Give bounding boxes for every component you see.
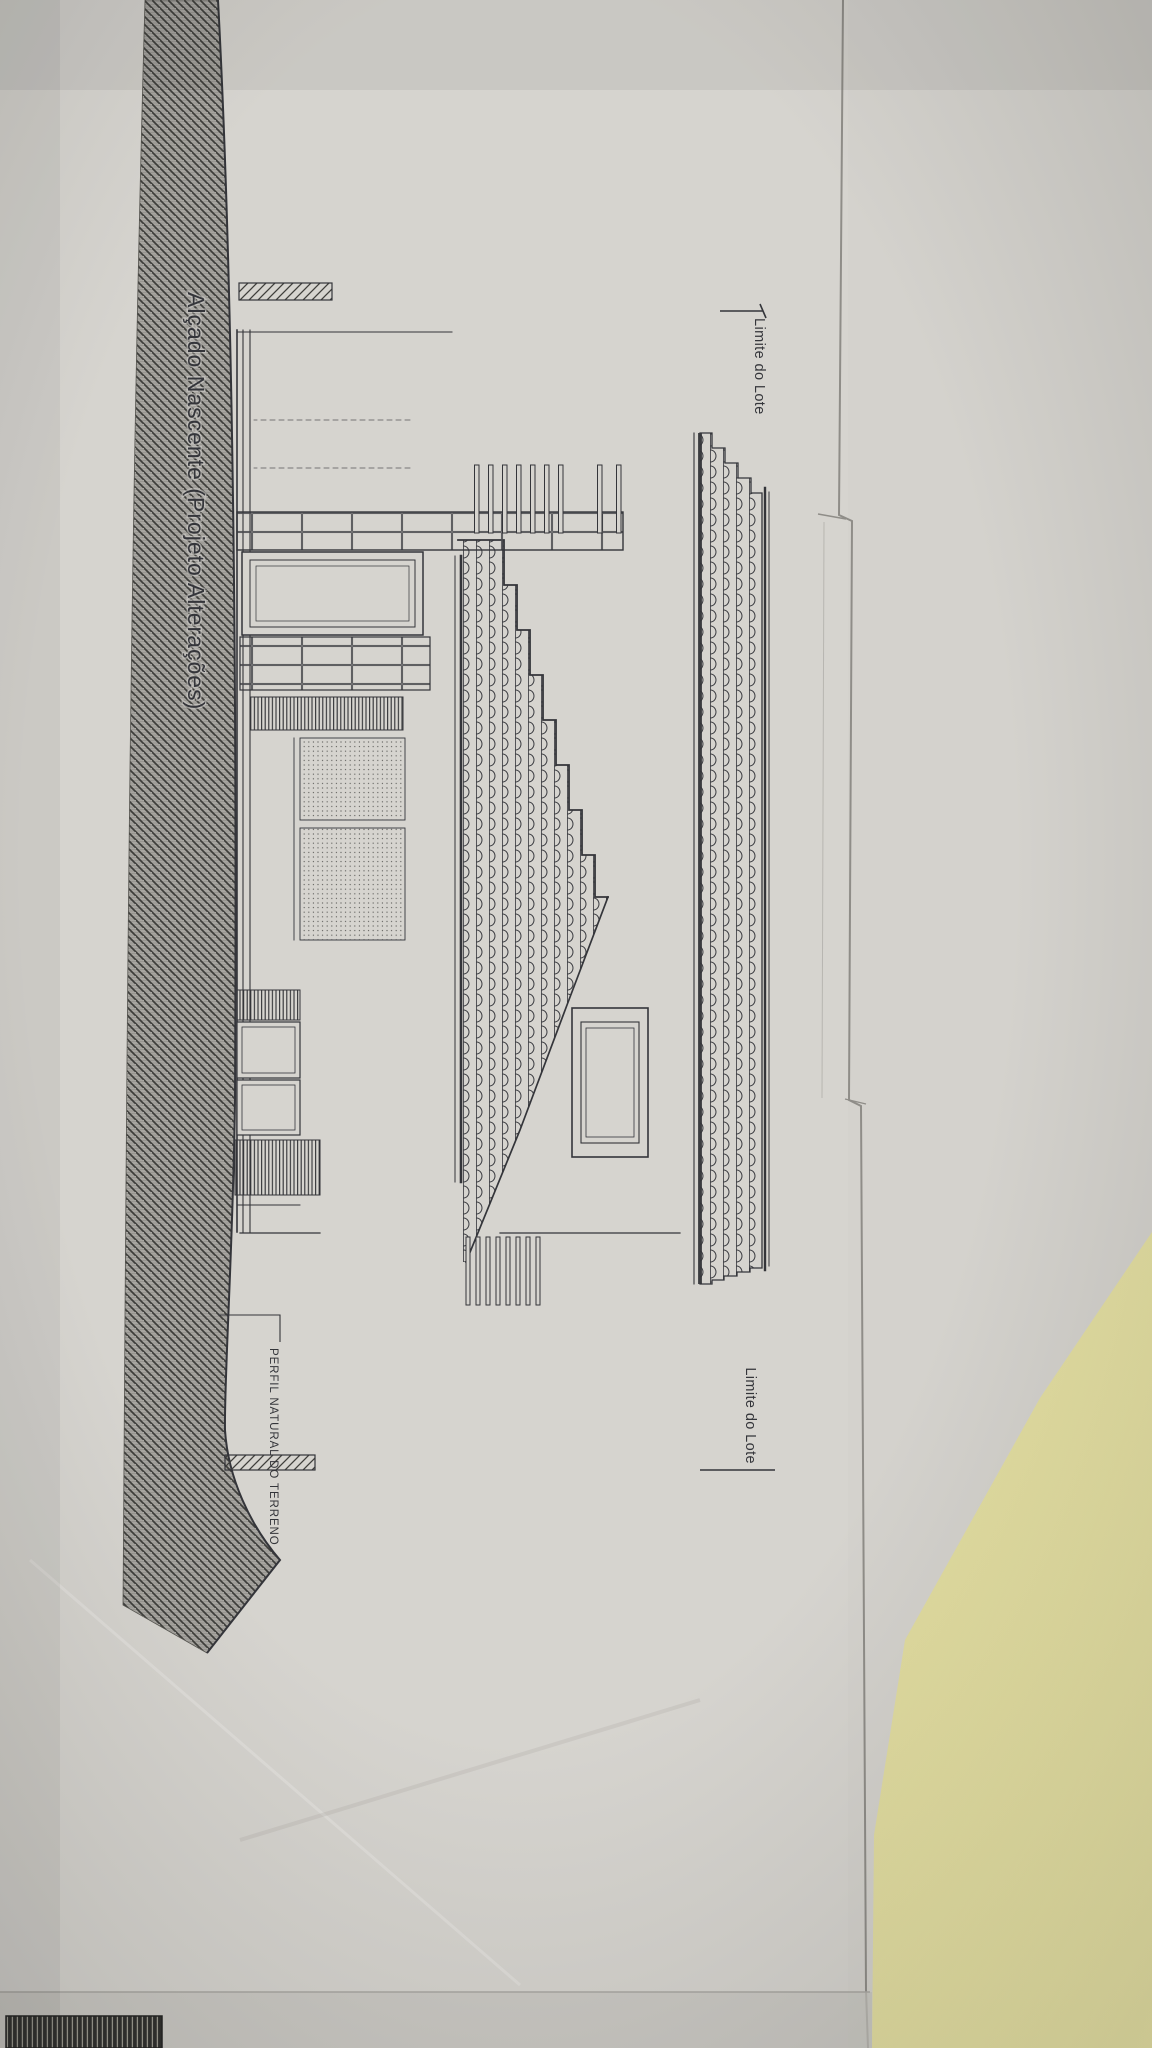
elevation-drawing-photo: Alçado Nascente (Projeto Alterações) Lim… <box>0 0 1152 2048</box>
lighting-overlays <box>0 0 1152 2048</box>
photo-of-architectural-drawing: Alçado Nascente (Projeto Alterações) Lim… <box>0 0 1152 2048</box>
